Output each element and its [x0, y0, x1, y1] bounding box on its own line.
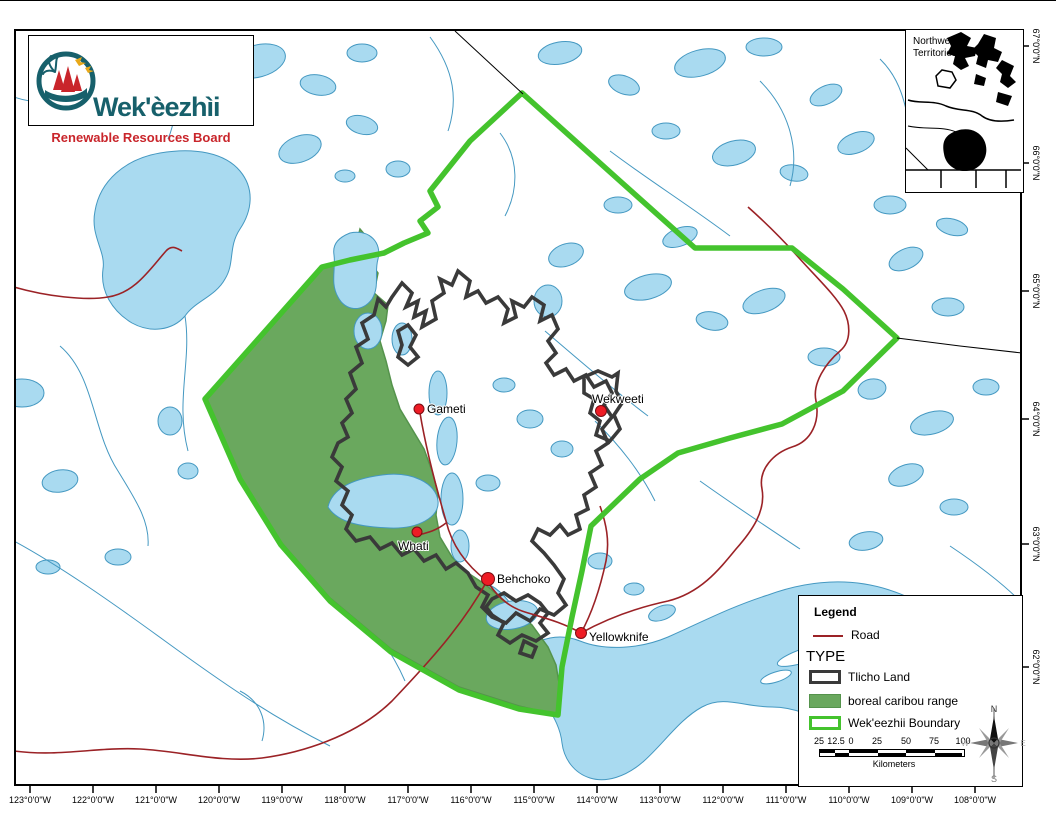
lon-label: 109°0'0"W: [891, 795, 933, 805]
logo-title: Wek'èezhìi: [93, 92, 219, 123]
lon-label: 112°0'0"W: [702, 795, 743, 805]
behchoko-marker: [482, 573, 495, 586]
scalebar: [819, 749, 965, 757]
legend-item-label: Wek'eezhii Boundary: [848, 716, 960, 730]
inset-label: Northwest Territories: [913, 36, 958, 60]
town-label-wekweeti: Wekweeti: [592, 392, 644, 406]
lon-label: 119°0'0"W: [261, 795, 302, 805]
scalebar-label: 25: [872, 736, 882, 746]
wekweeti-marker: [596, 406, 607, 417]
logo-box: Wek'èezhìi Renewable Resources Board: [28, 35, 254, 126]
lon-label: 123°0'0"W: [9, 795, 51, 805]
road-line-swatch: [813, 635, 843, 637]
compass-e: E: [1020, 739, 1025, 748]
town-label-whati: Whati: [398, 539, 429, 553]
lon-label: 114°0'0"W: [576, 795, 617, 805]
legend-title: Legend: [814, 605, 857, 619]
lon-label: 120°0'0"W: [198, 795, 240, 805]
gameti-marker: [414, 404, 424, 414]
lon-label: 108°0'0"W: [954, 795, 996, 805]
lon-label: 113°0'0"W: [639, 795, 680, 805]
legend-box: Legend Road TYPE Tlicho Land boreal cari…: [798, 595, 1023, 787]
scalebar-unit: Kilometers: [839, 759, 949, 769]
wekeezhii-swatch: [809, 716, 841, 730]
map-page: { "logo": { "title": "Wek'èezhìi", "subt…: [0, 0, 1056, 817]
lat-label: 66°0'0"N: [1031, 145, 1041, 180]
lon-label: 115°0'0"W: [513, 795, 554, 805]
town-label-gameti: Gameti: [427, 402, 466, 416]
lon-label: 110°0'0"W: [828, 795, 869, 805]
town-label-behchoko: Behchoko: [497, 572, 550, 586]
scalebar-label: 75: [929, 736, 939, 746]
scalebar-label: 25: [814, 736, 824, 746]
legend-item-tlicho: Tlicho Land: [809, 670, 910, 684]
caribou-swatch: [809, 694, 841, 708]
wekeezhii-logo-icon: [35, 50, 97, 112]
lon-label: 111°0'0"W: [766, 795, 807, 805]
inset-locator-map: Northwest Territories: [905, 29, 1024, 193]
lat-label: 63°0'0"N: [1031, 526, 1041, 561]
legend-type-heading: TYPE: [806, 648, 845, 665]
scalebar-label: 50: [901, 736, 911, 746]
logo-subtitle: Renewable Resources Board: [29, 130, 253, 145]
lon-label: 117°0'0"W: [387, 795, 428, 805]
lat-label: 62°0'0"N: [1031, 649, 1041, 684]
whati-marker: [412, 527, 422, 537]
lon-label: 121°0'0"W: [135, 795, 177, 805]
compass-rose: N S W E: [959, 702, 1029, 784]
compass-w: W: [961, 739, 969, 748]
tlicho-swatch: [809, 670, 841, 684]
legend-item-wekeezhii: Wek'eezhii Boundary: [809, 716, 960, 730]
legend-item-label: Tlicho Land: [848, 670, 910, 684]
town-label-yellowknife: Yellowknife: [589, 630, 649, 644]
compass-s: S: [991, 774, 997, 784]
compass-n: N: [991, 704, 998, 714]
lon-label: 116°0'0"W: [450, 795, 491, 805]
scalebar-label: 12.5: [827, 736, 845, 746]
lon-label: 122°0'0"W: [72, 795, 114, 805]
inset-label-line2: Territories: [913, 48, 958, 60]
legend-road-label: Road: [851, 628, 880, 642]
legend-item-caribou: boreal caribou range: [809, 694, 958, 708]
legend-item-label: boreal caribou range: [848, 694, 958, 708]
scalebar-label: 0: [848, 736, 853, 746]
lon-label: 118°0'0"W: [324, 795, 365, 805]
inset-label-line1: Northwest: [913, 36, 958, 48]
lat-label: 64°0'0"N: [1031, 401, 1041, 436]
lat-label: 65°0'0"N: [1031, 273, 1041, 308]
lat-label: 67°0'0"N: [1031, 28, 1041, 63]
yellowknife-marker: [576, 628, 587, 639]
